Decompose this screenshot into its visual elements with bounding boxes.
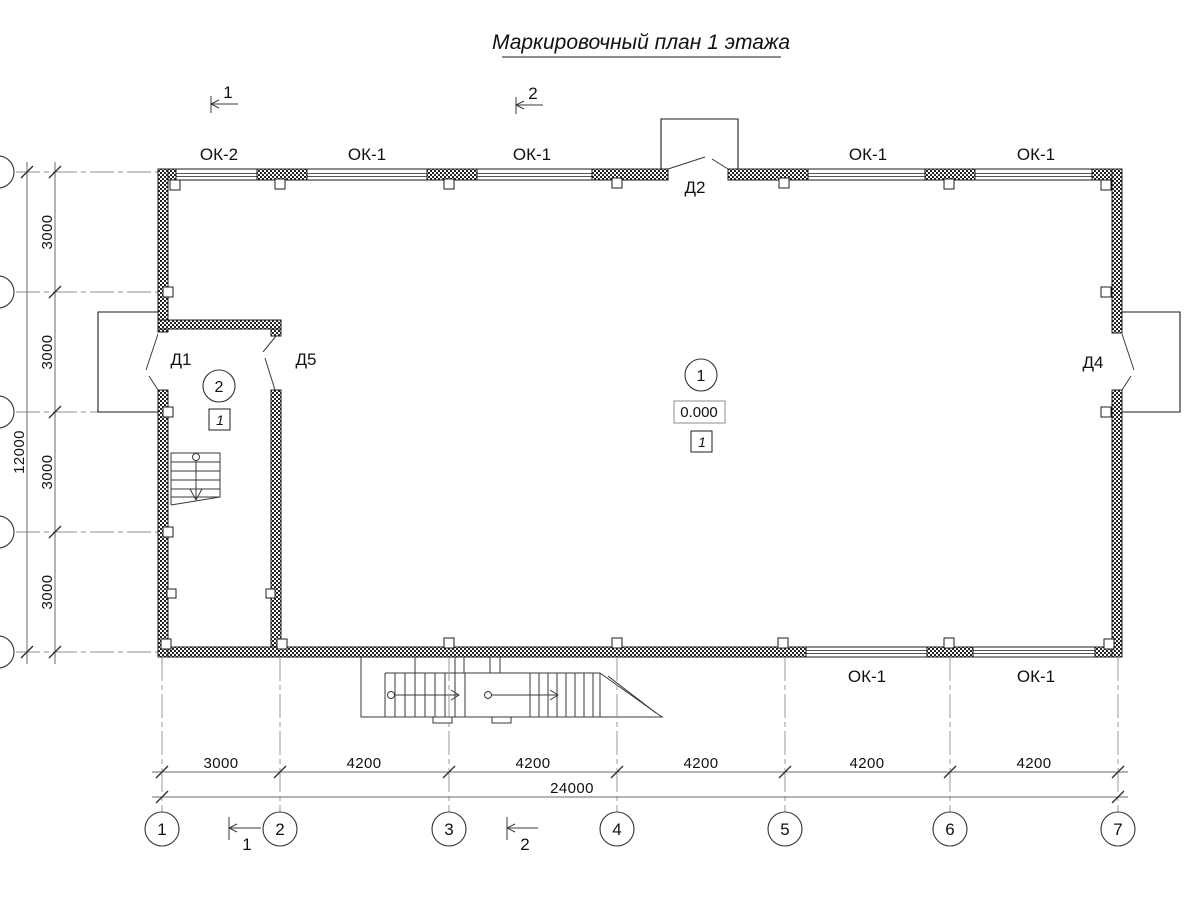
window-ok2-top	[176, 174, 257, 177]
door-label: Д2	[685, 178, 706, 197]
window-ok1-top	[477, 174, 592, 177]
wall-right-lower	[1112, 390, 1122, 657]
door-symbols	[146, 157, 1134, 390]
section-number: 2	[528, 84, 537, 103]
section-number: 1	[223, 83, 232, 102]
door-d2-swing	[668, 157, 728, 169]
window-label: ОК-1	[348, 145, 386, 164]
drawing-sheet: Маркировочный план 1 этажа 3000 3000 300…	[0, 0, 1200, 900]
axis-number: 6	[945, 820, 954, 839]
opening-labels: ОК-2 ОК-1 ОК-1 ОК-1 ОК-1 ОК-1 ОК-1 Д2 Д1…	[171, 145, 1104, 686]
window-ok1-top	[808, 174, 925, 177]
left-dimensions: 3000 3000 3000 3000 12000	[11, 162, 61, 664]
floor-type-number: 1	[216, 412, 224, 428]
axis-bubbles-bottom: 1 2 3 4 5 6 7	[145, 812, 1135, 846]
window-ok1-top	[975, 174, 1092, 177]
wall-left-lower	[158, 390, 168, 657]
wall-interior-horizontal	[158, 320, 281, 329]
wall-pier	[925, 169, 975, 180]
axis-bubble-left	[0, 156, 14, 188]
axis-bubble-left	[0, 396, 14, 428]
window-ok1-bottom	[806, 651, 927, 654]
wall-pier	[257, 169, 307, 180]
axis-number: 5	[780, 820, 789, 839]
door-label: Д5	[296, 350, 317, 369]
axis-number: 3	[444, 820, 453, 839]
exterior-wall-faces	[158, 169, 1122, 657]
axis-number: 4	[612, 820, 621, 839]
dim-left-1: 3000	[39, 215, 56, 250]
porch-posts	[415, 657, 500, 673]
axis-number: 7	[1113, 820, 1122, 839]
window-label: ОК-1	[1017, 145, 1055, 164]
room-number: 2	[215, 379, 224, 396]
door-label: Д1	[171, 350, 192, 369]
room-2-marker: 2 1	[203, 370, 235, 430]
column-markers	[161, 178, 1114, 649]
dim-bottom-3: 4200	[516, 755, 551, 772]
external-stair	[361, 657, 663, 723]
section-number: 1	[242, 835, 251, 854]
door-d1-swing	[146, 334, 158, 390]
section-mark-1-bottom: 1	[229, 817, 261, 854]
room-number: 1	[697, 368, 706, 385]
section-number: 2	[520, 835, 529, 854]
window-frame-lines	[176, 174, 1095, 654]
bottom-dimensions: 3000 4200 4200 4200 4200 4200 24000	[152, 755, 1128, 803]
elevation-value: 0.000	[680, 404, 718, 421]
dim-left-3: 3000	[39, 455, 56, 490]
floor-type-number: 1	[698, 434, 706, 450]
dim-bottom-4: 4200	[684, 755, 719, 772]
wall-left-upper	[158, 169, 168, 332]
window-label: ОК-1	[1017, 667, 1055, 686]
section-mark-2-top: 2	[516, 84, 543, 114]
dim-left-total: 12000	[11, 430, 28, 474]
wall-interior-stub	[271, 329, 281, 336]
dim-bottom-6: 4200	[1017, 755, 1052, 772]
door-label: Д4	[1083, 353, 1104, 372]
wall-interior-vertical	[271, 390, 281, 647]
section-mark-1-top: 1	[211, 83, 238, 113]
section-mark-2-bottom: 2	[507, 817, 538, 854]
wall-pier	[592, 169, 668, 180]
axis-bubble-left	[0, 636, 14, 668]
room-1-marker: 1 0.000 1	[674, 359, 725, 452]
page-title: Маркировочный план 1 этажа	[492, 31, 790, 54]
dim-bottom-1: 3000	[204, 755, 239, 772]
right-porch	[1122, 312, 1180, 412]
window-label: ОК-2	[200, 145, 238, 164]
drawing-title: Маркировочный план 1 этажа	[492, 31, 790, 57]
dim-bottom-total: 24000	[550, 780, 594, 797]
door-d5-swing	[263, 336, 276, 390]
entrance-vestibule	[661, 119, 738, 169]
axis-number: 1	[157, 820, 166, 839]
window-ok1-top	[307, 174, 427, 177]
window-ok1-bottom	[973, 651, 1095, 654]
window-label: ОК-1	[848, 667, 886, 686]
wall-right-upper	[1112, 169, 1122, 333]
floor-plan-drawing: Маркировочный план 1 этажа 3000 3000 300…	[0, 0, 1200, 900]
internal-stair	[171, 453, 220, 505]
axis-number: 2	[275, 820, 284, 839]
dim-left-2: 3000	[39, 335, 56, 370]
window-label: ОК-1	[513, 145, 551, 164]
wall-pier	[728, 169, 808, 180]
window-label: ОК-1	[849, 145, 887, 164]
walls	[158, 169, 1122, 657]
wall-bottom-solid	[158, 647, 806, 657]
wall-pier	[427, 169, 477, 180]
dim-bottom-2: 4200	[347, 755, 382, 772]
dim-left-4: 3000	[39, 575, 56, 610]
door-d4-swing	[1122, 334, 1134, 390]
axis-bubble-left	[0, 276, 14, 308]
bottom-axis-grid	[162, 657, 1118, 812]
dim-bottom-5: 4200	[850, 755, 885, 772]
axis-bubble-left	[0, 516, 14, 548]
stair-arrow-start	[193, 454, 200, 461]
